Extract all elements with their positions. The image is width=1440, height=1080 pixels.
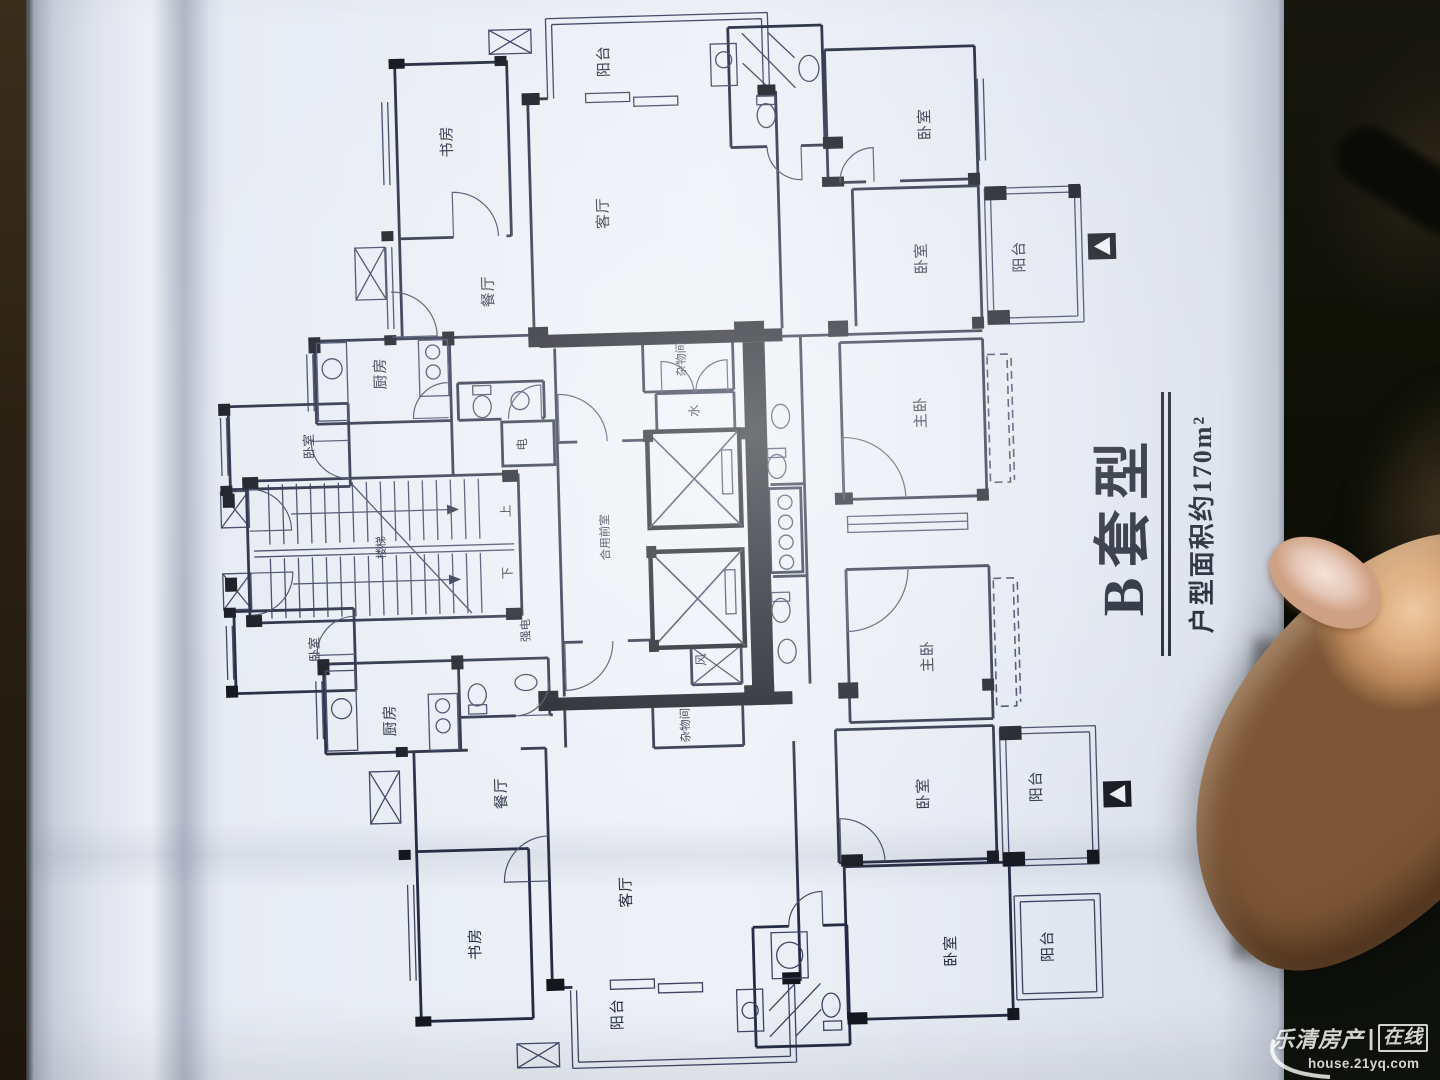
watermark-boxed: 在线 (1378, 1024, 1428, 1052)
watermark-swoosh (1264, 1038, 1338, 1080)
photo-of-floorplan-page: 阳台 书房 客厅 餐厅 厨房 卧室 电 杂物间 水 卧室 卧室 阳台 主卧 楼梯… (0, 0, 1440, 1080)
watermark: 乐清房产|在线 house.21yq.com (1272, 1022, 1440, 1071)
watermark-separator: | (1368, 1025, 1375, 1051)
paper-sheen (26, 0, 1284, 1080)
